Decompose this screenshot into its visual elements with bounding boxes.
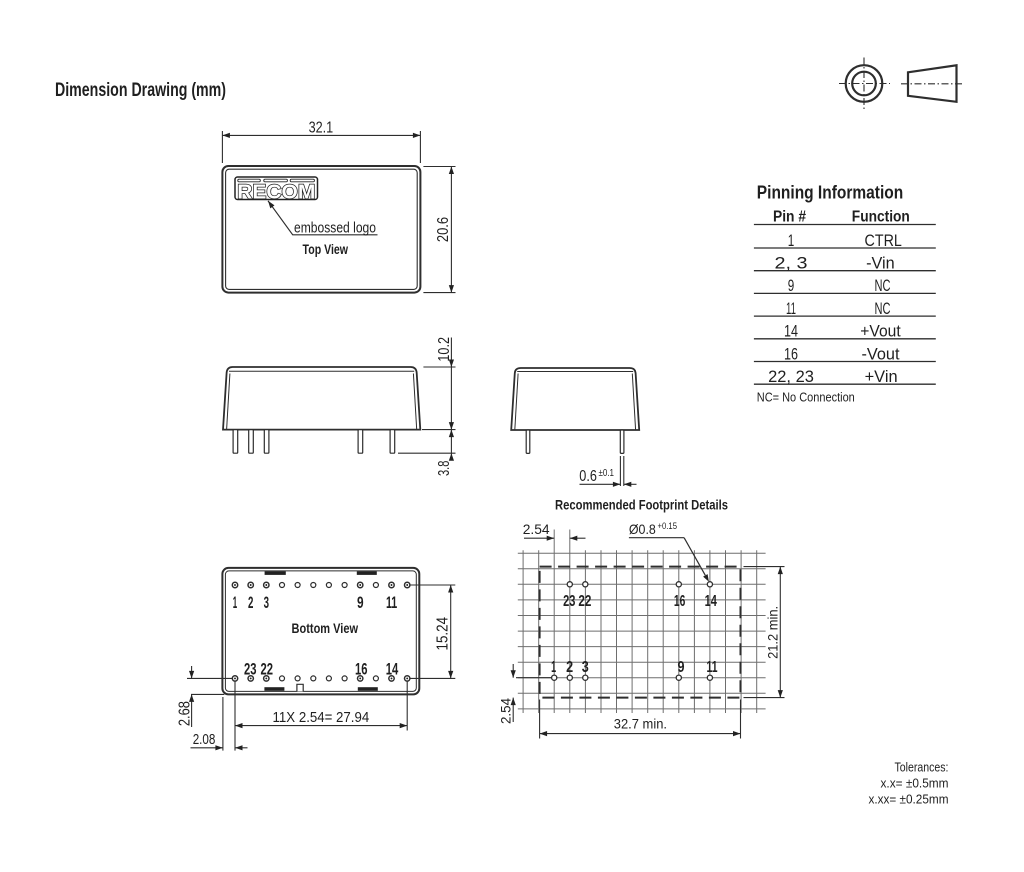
svg-text:0.6: 0.6	[579, 468, 597, 485]
svg-text:32.7 min.: 32.7 min.	[614, 716, 667, 732]
svg-text:2.54: 2.54	[497, 698, 513, 724]
svg-text:16: 16	[784, 344, 798, 363]
svg-text:22: 22	[578, 593, 591, 610]
svg-text:x.x= ±0.5mm: x.x= ±0.5mm	[881, 776, 949, 791]
svg-text:21.2 min.: 21.2 min.	[764, 606, 780, 659]
svg-text:2.08: 2.08	[193, 731, 216, 748]
svg-text:11: 11	[786, 299, 796, 318]
svg-text:Dimension Drawing (mm): Dimension Drawing (mm)	[55, 80, 226, 101]
svg-text:NC: NC	[875, 299, 891, 318]
svg-text:14: 14	[705, 593, 718, 610]
svg-text:11X 2.54= 27.94: 11X 2.54= 27.94	[273, 710, 370, 726]
svg-text:Pin #: Pin #	[773, 208, 806, 225]
svg-text:11: 11	[386, 593, 397, 612]
svg-text:+Vin: +Vin	[865, 367, 898, 386]
svg-text:1: 1	[551, 659, 556, 676]
svg-text:RECOM: RECOM	[237, 182, 315, 204]
svg-text:+Vout: +Vout	[860, 322, 901, 341]
svg-text:+0.15: +0.15	[658, 521, 678, 532]
svg-text:2: 2	[566, 659, 573, 676]
svg-text:16: 16	[674, 593, 686, 610]
svg-text:15.24: 15.24	[435, 617, 452, 651]
svg-text:2, 3: 2, 3	[775, 254, 808, 273]
svg-text:3: 3	[582, 659, 589, 676]
svg-text:22, 23: 22, 23	[768, 367, 814, 386]
svg-text:-Vout: -Vout	[862, 344, 900, 363]
svg-text:23: 23	[244, 659, 257, 678]
svg-text:3.8: 3.8	[436, 461, 453, 476]
svg-text:Recommended Footprint Details: Recommended Footprint Details	[555, 496, 728, 512]
svg-text:9: 9	[357, 593, 364, 612]
svg-text:CTRL: CTRL	[865, 231, 902, 250]
svg-text:2: 2	[248, 593, 253, 612]
svg-text:3: 3	[264, 593, 269, 612]
svg-text:9: 9	[788, 276, 795, 295]
svg-text:14: 14	[784, 322, 798, 341]
svg-text:20.6: 20.6	[435, 217, 452, 242]
svg-text:9: 9	[678, 659, 685, 676]
svg-text:1: 1	[233, 593, 237, 612]
svg-text:x.xx= ±0.25mm: x.xx= ±0.25mm	[869, 792, 949, 807]
svg-text:2.54: 2.54	[523, 521, 550, 537]
svg-text:14: 14	[386, 659, 399, 678]
svg-text:10.2: 10.2	[436, 337, 453, 362]
svg-text:Tolerances:: Tolerances:	[895, 760, 949, 775]
svg-text:NC: NC	[875, 276, 891, 295]
svg-text:Pinning Information: Pinning Information	[757, 183, 903, 203]
svg-text:Ø0.8: Ø0.8	[629, 521, 656, 537]
svg-text:Top View: Top View	[303, 241, 349, 257]
svg-text:11: 11	[707, 659, 718, 676]
svg-text:embossed logo: embossed logo	[294, 220, 376, 236]
svg-text:2.68: 2.68	[176, 701, 193, 726]
svg-text:Function: Function	[852, 208, 910, 225]
svg-text:-Vin: -Vin	[866, 254, 895, 273]
svg-text:23: 23	[563, 593, 576, 610]
svg-text:±0.1: ±0.1	[599, 467, 615, 479]
svg-text:1: 1	[788, 231, 795, 250]
svg-text:22: 22	[260, 659, 273, 678]
svg-text:32.1: 32.1	[309, 120, 334, 137]
svg-text:Bottom View: Bottom View	[292, 620, 359, 636]
svg-text:16: 16	[355, 659, 368, 678]
svg-text:NC= No Connection: NC= No Connection	[757, 390, 855, 405]
